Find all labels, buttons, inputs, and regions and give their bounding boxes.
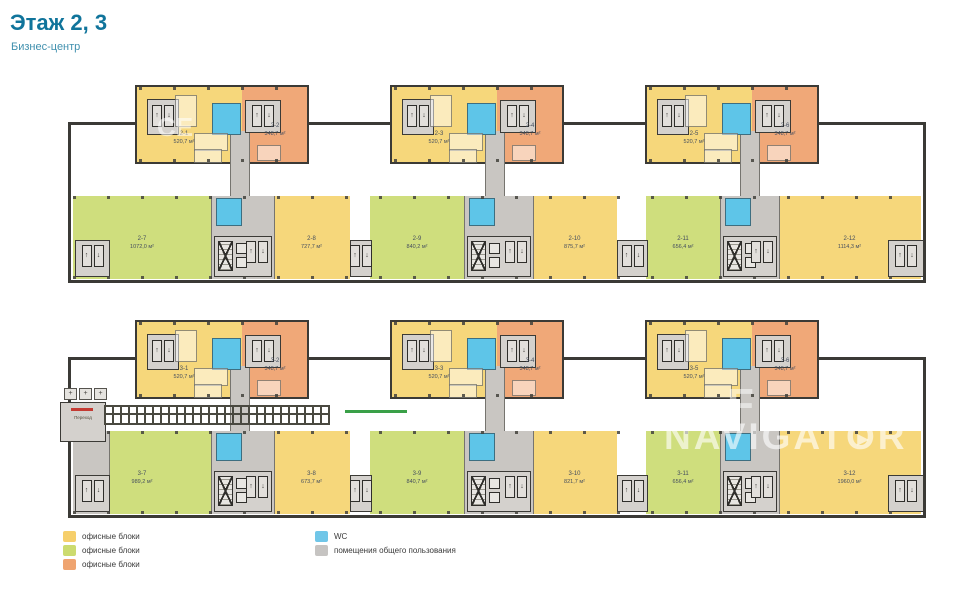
- tower: ↑↓↑↓3-1520,7 м²3-2348,7 м²: [135, 320, 309, 399]
- elevator-cell: ↑: [407, 340, 417, 362]
- elevator-icon: ↑↓: [622, 480, 644, 502]
- legend-swatch-orange: [63, 559, 76, 570]
- window-ticks: [394, 322, 560, 325]
- elevator-cell: ↑: [82, 245, 92, 267]
- floor-plan-2: 2-71072,0 м²2-8727,7 м²2-9840,2 м²2-1087…: [68, 85, 926, 283]
- elevator-cell: ↓: [419, 105, 429, 127]
- elevator-icon: ↑↓: [895, 480, 917, 502]
- elevator-icon: ↑↓: [662, 340, 684, 362]
- elevator-cell: ↓: [258, 476, 268, 498]
- elevator-icon: ↑↓: [507, 340, 529, 362]
- core-machine-room: ↑↓: [214, 236, 272, 277]
- legend-swatch-blue: [315, 531, 328, 542]
- elevator-icon: ↑↓: [350, 245, 372, 267]
- elevator-cell: ↓: [763, 241, 773, 263]
- plus-buttons: +++: [64, 388, 107, 400]
- elevator-cell: ↑: [895, 480, 905, 502]
- unit-id: 2-9: [370, 236, 464, 244]
- window-ticks: [139, 322, 305, 325]
- legend-swatch-green: [63, 545, 76, 556]
- unit-area: 656,4 м²: [646, 244, 720, 251]
- legend-item-wc: WC: [315, 531, 456, 542]
- unit-area: 840,2 м²: [370, 244, 464, 251]
- elevator-icon: ↑↓: [407, 105, 429, 127]
- plus-icon: +: [79, 388, 92, 400]
- unit-area: 821,7 м²: [532, 479, 617, 486]
- stairs-icon: [727, 241, 742, 271]
- elevator-block: ↑↓: [755, 335, 791, 368]
- strip-section-3-8: 3-8673,7 м²: [273, 431, 350, 514]
- elevator-icon: ↑↓: [252, 105, 274, 127]
- elevator-cell: ↑: [246, 241, 256, 263]
- elevator-cell: ↑: [246, 476, 256, 498]
- watermark-fragment-top: СЕ: [157, 112, 193, 143]
- plus-icon: +: [94, 388, 107, 400]
- page: Этаж 2, 3 Бизнес-центр 2-71072,0 м²2-872…: [0, 0, 975, 594]
- elevator-icon: ↑↓: [507, 105, 529, 127]
- elevator-block: ↑↓: [617, 240, 648, 277]
- elevator-cell: ↑: [662, 340, 672, 362]
- core-machine-room: ↑↓: [467, 471, 531, 512]
- unit-area: 875,7 м²: [532, 244, 617, 251]
- elevator-cell: ↑: [505, 476, 515, 498]
- unit-label-3-10: 3-10821,7 м²: [532, 471, 617, 486]
- window-ticks: [139, 87, 305, 90]
- window-ticks: [139, 394, 305, 397]
- unit-id: 3-9: [370, 471, 464, 479]
- elevator-cell: ↑: [152, 340, 162, 362]
- elevator-icon: ↑↓: [505, 476, 527, 498]
- bridge-walkway: [104, 405, 330, 425]
- service-room: [489, 492, 500, 503]
- wc-area: [216, 433, 242, 461]
- elevator-cell: ↑: [622, 480, 632, 502]
- elevator-cell: ↑: [252, 340, 262, 362]
- window-ticks: [394, 159, 560, 162]
- window-ticks: [139, 159, 305, 162]
- play-icon: ▶: [857, 431, 868, 448]
- elevator-icon: ↑↓: [762, 340, 784, 362]
- elevator-cell: ↓: [519, 105, 529, 127]
- bridge-label: Переход: [61, 415, 105, 420]
- elevator-icon: ↑↓: [252, 340, 274, 362]
- elevator-cell: ↑: [82, 480, 92, 502]
- elevator-icon: ↑↓: [246, 476, 268, 498]
- legend-item-office-green: офисные блоки: [63, 545, 140, 556]
- wc-area: [725, 198, 751, 226]
- room-outline: [430, 95, 452, 127]
- elevator-icon: ↑↓: [762, 105, 784, 127]
- legend-swatch-gray: [315, 545, 328, 556]
- window-ticks: [394, 394, 560, 397]
- room-outline: [175, 330, 197, 362]
- wc-area: [469, 198, 495, 226]
- watermark-brand: NAVIGATO▶R: [664, 416, 908, 458]
- unit-id: 3-8: [273, 471, 350, 479]
- unit-id: 2-8: [273, 236, 350, 244]
- strip-section-2-11: 2-11656,4 м²: [646, 196, 720, 279]
- room-outline: [685, 95, 707, 127]
- elevator-block: ↑↓: [500, 100, 536, 133]
- core-common-area: ↑↓: [720, 196, 780, 279]
- unit-area: 840,7 м²: [370, 479, 464, 486]
- legend-swatch-yellow: [63, 531, 76, 542]
- elevator-cell: ↓: [774, 105, 784, 127]
- unit-id: 2-11: [646, 236, 720, 244]
- legend-label: офисные блоки: [82, 546, 140, 555]
- wc-area: [216, 198, 242, 226]
- elevator-cell: ↓: [763, 476, 773, 498]
- elevator-icon: ↑↓: [662, 105, 684, 127]
- elevator-cell: ↑: [507, 105, 517, 127]
- core-machine-room: ↑↓: [723, 236, 777, 277]
- elevator-cell: ↓: [907, 245, 917, 267]
- strip-section-2-9: 2-9840,2 м²: [370, 196, 464, 279]
- elevator-cell: ↓: [634, 245, 644, 267]
- unit-id: 3-10: [532, 471, 617, 479]
- legend-label: офисные блоки: [82, 560, 140, 569]
- wc-area: [467, 338, 496, 370]
- stairs-icon: [727, 476, 742, 506]
- service-room: [489, 478, 500, 489]
- unit-area: 656,4 м²: [646, 479, 720, 486]
- elevator-block: ↑↓: [617, 475, 648, 512]
- unit-label-2-8: 2-8727,7 м²: [273, 236, 350, 251]
- wc-area: [212, 103, 241, 135]
- elevator-cell: ↑: [895, 245, 905, 267]
- elevator-cell: ↓: [634, 480, 644, 502]
- core-machine-room: ↑↓: [467, 236, 531, 277]
- unit-area: 727,7 м²: [273, 244, 350, 251]
- elevator-cell: ↑: [407, 105, 417, 127]
- elevator-cell: ↑: [350, 245, 360, 267]
- unit-id: 2-10: [532, 236, 617, 244]
- unit-area: 673,7 м²: [273, 479, 350, 486]
- watermark-letter-o: O▶: [846, 416, 878, 458]
- unit-label-3-11: 3-11656,4 м²: [646, 471, 720, 486]
- elevator-cell: ↑: [762, 340, 772, 362]
- elevator-block: ↑↓: [245, 335, 281, 368]
- elevator-icon: ↑↓: [895, 245, 917, 267]
- elevator-block: ↑↓: [350, 240, 372, 277]
- elevator-cell: ↓: [362, 480, 372, 502]
- elevator-cell: ↑: [762, 105, 772, 127]
- window-ticks: [649, 87, 815, 90]
- elevator-icon: ↑↓: [622, 245, 644, 267]
- service-room: [489, 257, 500, 268]
- elevator-icon: ↑↓: [751, 241, 773, 263]
- strip: 2-71072,0 м²2-8727,7 м²2-9840,2 м²2-1087…: [71, 196, 923, 279]
- wc-area: [722, 103, 751, 135]
- tower: ↑↓↑↓2-3520,7 м²2-4348,7 м²: [390, 85, 564, 164]
- strip-section-3-10: 3-10821,7 м²: [532, 431, 617, 514]
- elevator-icon: ↑↓: [246, 241, 268, 263]
- service-room: [489, 243, 500, 254]
- elevator-cell: ↓: [419, 340, 429, 362]
- stairs-icon: [471, 476, 486, 506]
- elevator-cell: ↓: [674, 105, 684, 127]
- core-machine-room: ↑↓: [214, 471, 272, 512]
- elevator-cell: ↓: [362, 245, 372, 267]
- core-machine-room: ↑↓: [723, 471, 777, 512]
- elevator-cell: ↑: [751, 241, 761, 263]
- unit-label-2-10: 2-10875,7 м²: [532, 236, 617, 251]
- elevator-block: ↑↓: [888, 475, 924, 512]
- unit-label-3-8: 3-8673,7 м²: [273, 471, 350, 486]
- wc-area: [212, 338, 241, 370]
- elevator-cell: ↑: [350, 480, 360, 502]
- window-ticks: [394, 87, 560, 90]
- page-subtitle: Бизнес-центр: [11, 41, 80, 53]
- stairs-icon: [218, 476, 233, 506]
- elevator-cell: ↓: [264, 340, 274, 362]
- plus-icon: +: [64, 388, 77, 400]
- elevator-cell: ↓: [519, 340, 529, 362]
- elevator-icon: ↑↓: [350, 480, 372, 502]
- core-common-area: ↑↓: [464, 431, 534, 514]
- legend-item-office-yellow: офисные блоки: [63, 531, 140, 542]
- core-common-area: ↑↓: [211, 196, 275, 279]
- elevator-cell: ↓: [517, 241, 527, 263]
- elevator-block: ↑↓: [888, 240, 924, 277]
- elevator-cell: ↑: [252, 105, 262, 127]
- elevator-icon: ↑↓: [505, 241, 527, 263]
- page-title: Этаж 2, 3: [10, 10, 107, 36]
- elevator-cell: ↑: [662, 105, 672, 127]
- window-ticks: [73, 276, 921, 279]
- elevator-icon: ↑↓: [751, 476, 773, 498]
- core-common-area: ↑↓: [211, 431, 275, 514]
- unit-label-3-9: 3-9840,7 м²: [370, 471, 464, 486]
- tower: ↑↓↑↓2-5520,7 м²2-6348,7 м²: [645, 85, 819, 164]
- elevator-icon: ↑↓: [82, 480, 104, 502]
- elevator-icon: ↑↓: [152, 340, 174, 362]
- strip-section-3-9: 3-9840,7 м²: [370, 431, 464, 514]
- window-ticks: [73, 511, 921, 514]
- legend-item-common: помещения общего пользования: [315, 545, 456, 556]
- legend-label: помещения общего пользования: [334, 546, 456, 555]
- elevator-cell: ↓: [517, 476, 527, 498]
- bridge-entrance: Переход: [60, 402, 106, 442]
- elevator-icon: ↑↓: [407, 340, 429, 362]
- elevator-cell: ↓: [264, 105, 274, 127]
- unit-label-2-11: 2-11656,4 м²: [646, 236, 720, 251]
- window-ticks: [73, 196, 921, 199]
- red-mark: [71, 408, 93, 411]
- green-mark: [345, 410, 407, 413]
- unit-label-2-9: 2-9840,2 м²: [370, 236, 464, 251]
- stairs-icon: [218, 241, 233, 271]
- window-ticks: [649, 322, 815, 325]
- wc-area: [467, 103, 496, 135]
- elevator-cell: ↓: [907, 480, 917, 502]
- elevator-cell: ↑: [505, 241, 515, 263]
- elevator-icon: ↑↓: [82, 245, 104, 267]
- elevator-block: ↑↓: [755, 100, 791, 133]
- elevator-cell: ↓: [94, 245, 104, 267]
- elevator-block: ↑↓: [500, 335, 536, 368]
- tower: ↑↓↑↓3-3520,7 м²3-4348,7 м²: [390, 320, 564, 399]
- elevator-block: ↑↓: [350, 475, 372, 512]
- legend-item-office-orange: офисные блоки: [63, 559, 140, 570]
- watermark-text-end: R: [878, 416, 908, 457]
- elevator-cell: ↓: [94, 480, 104, 502]
- elevator-cell: ↑: [751, 476, 761, 498]
- elevator-cell: ↓: [674, 340, 684, 362]
- room-outline: [430, 330, 452, 362]
- elevator-cell: ↓: [164, 340, 174, 362]
- elevator-cell: ↑: [622, 245, 632, 267]
- room-outline: [685, 330, 707, 362]
- wc-area: [722, 338, 751, 370]
- elevator-cell: ↑: [507, 340, 517, 362]
- elevator-cell: ↓: [258, 241, 268, 263]
- elevator-block: ↑↓: [245, 100, 281, 133]
- elevator-cell: ↓: [774, 340, 784, 362]
- legend-label: офисные блоки: [82, 532, 140, 541]
- legend-label: WC: [334, 532, 347, 541]
- unit-id: 3-11: [646, 471, 720, 479]
- stairs-icon: [471, 241, 486, 271]
- window-ticks: [649, 159, 815, 162]
- core-common-area: ↑↓: [464, 196, 534, 279]
- strip-section-2-8: 2-8727,7 м²: [273, 196, 350, 279]
- elevator-block: ↑↓: [75, 475, 110, 512]
- strip-section-2-10: 2-10875,7 м²: [532, 196, 617, 279]
- watermark-text: NAVIGAT: [664, 416, 846, 457]
- elevator-block: ↑↓: [75, 240, 110, 277]
- wc-area: [469, 433, 495, 461]
